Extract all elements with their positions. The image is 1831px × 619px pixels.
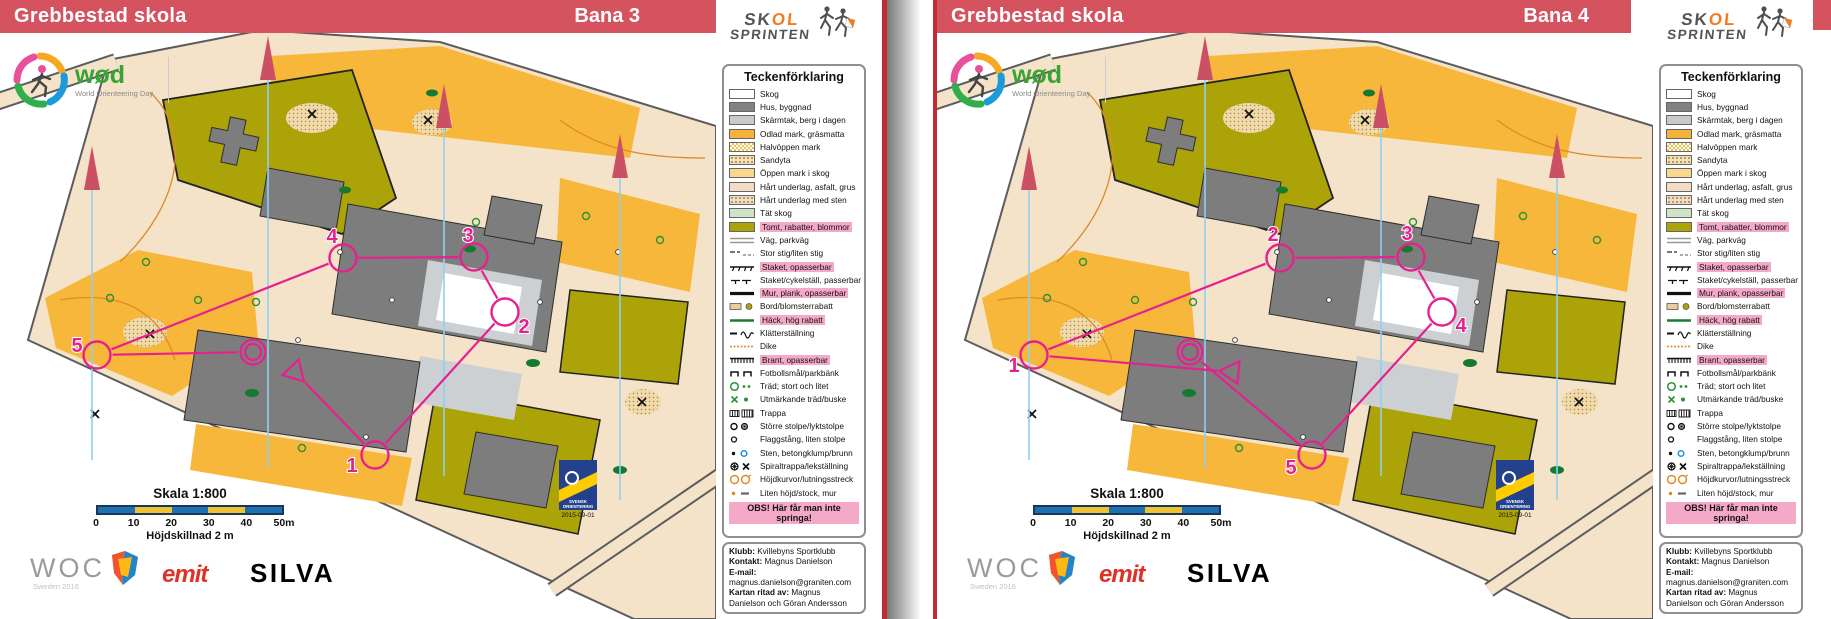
club-info-panel: Klubb: Kvillebyns Sportklubb Kontakt: Ma…	[722, 542, 866, 614]
legend-row: Flaggstång, liten stolpe	[1666, 433, 1796, 446]
legend-label: Klätterställning	[760, 328, 814, 338]
legend-row: Hårt underlag, asfalt, grus	[1666, 180, 1796, 193]
legend-title: Teckenförklaring	[1666, 70, 1796, 84]
fotbollsmal-symbol-icon	[1666, 368, 1692, 378]
scale-tick: 20	[165, 517, 177, 529]
legend-label: Staket/cykelställ, passerbar	[760, 275, 861, 285]
tomt-swatch-icon	[1666, 222, 1692, 232]
utmarkande-trad-symbol-icon	[1666, 394, 1692, 404]
legend-label: Större stolpe/lyktstolpe	[760, 421, 844, 431]
cartographer: Kartan ritad av: Magnus Danielson och Gö…	[729, 588, 859, 609]
sponsor-logos: WOC Sweden 2016 emit SILVA	[0, 545, 400, 619]
control-number: 4	[326, 226, 338, 248]
legend-row: Utmärkande träd/buske	[1666, 393, 1796, 406]
hojdkurvor-symbol-icon	[729, 474, 755, 484]
legend-label: Utmärkande träd/buske	[760, 394, 846, 404]
course-leg-line	[305, 383, 364, 444]
legend-label: Mur, plank, opasserbar	[1697, 288, 1785, 298]
flaggstang-symbol-icon	[729, 434, 755, 444]
legend-label: Öppen mark i skog	[1697, 168, 1767, 178]
contact-name: Kontakt: Magnus Danielson	[729, 557, 859, 567]
control-number: 2	[1267, 224, 1278, 246]
legend-label: Staket/cykelställ, passerbar	[1697, 275, 1798, 285]
woc-logo: WOC Sweden 2016	[967, 555, 1079, 591]
legend-row: Tomt, rabatter, blommor	[729, 220, 859, 233]
legend-label: Skärmtak, berg i dagen	[1697, 115, 1783, 125]
control-circle	[330, 245, 357, 272]
legend-row: Utmärkande träd/buske	[729, 393, 859, 406]
scale-tick: 10	[1065, 517, 1077, 529]
trappa-symbol-icon	[729, 408, 755, 418]
legend-label: Skog	[760, 89, 779, 99]
skolsprinten-wordmark: SKOL SPRINTEN	[1667, 11, 1751, 43]
silva-logo: SILVA	[250, 558, 335, 589]
wod-logo: wød World Orienteering Day	[12, 52, 169, 108]
course-overlay: 12345	[71, 225, 529, 477]
map-page: Grebbestad skola Bana 4 12345 SKOL SPRIN…	[937, 0, 1831, 619]
halvoppen-swatch-icon	[1666, 142, 1692, 152]
legend-row: Flaggstång, liten stolpe	[729, 433, 859, 446]
skog-swatch-icon	[1666, 89, 1692, 99]
skarmtak-swatch-icon	[1666, 115, 1692, 125]
wod-subtitle: World Orienteering Day	[1012, 89, 1090, 98]
legend-row: Öppen mark i skog	[729, 167, 859, 180]
silva-logo: SILVA	[1187, 558, 1272, 589]
legend-row: Staket/cykelställ, passerbar	[729, 273, 859, 286]
legend-row: Hårt underlag med sten	[1666, 193, 1796, 206]
odlad-swatch-icon	[729, 129, 755, 139]
scale-ticks: 01020304050m	[1033, 517, 1221, 530]
legend-label: Hårt underlag, asfalt, grus	[1697, 182, 1792, 192]
federation-name: SVENSK ORIENTERING	[559, 499, 597, 509]
control-number: 3	[1401, 223, 1412, 245]
scale-box: Skala 1:800 01020304050m Höjdskillnad 2 …	[96, 486, 284, 542]
legend-row: Tät skog	[729, 207, 859, 220]
oppenmark-swatch-icon	[729, 168, 755, 178]
sponsor-logos: WOC Sweden 2016 emit SILVA	[937, 545, 1337, 619]
hojdkurvor-symbol-icon	[1666, 474, 1692, 484]
stig-line-icon	[1666, 248, 1692, 258]
woc-wordmark: WOC	[30, 555, 105, 582]
legend-row: Brant, opasserbar	[729, 353, 859, 366]
legend-label: Brant, opasserbar	[1697, 355, 1767, 365]
legend-label: Fotbollsmål/parkbänk	[1697, 368, 1776, 378]
club-name: Klubb: Kvillebyns Sportklubb	[1666, 547, 1796, 557]
legend-label: Odlad mark, gräsmatta	[760, 129, 844, 139]
tatskog-swatch-icon	[729, 208, 755, 218]
dike-line-icon	[1666, 341, 1692, 351]
legend-row: Staket/cykelställ, passerbar	[1666, 273, 1796, 286]
control-number: 4	[1455, 315, 1467, 337]
scale-tick: 30	[1140, 517, 1152, 529]
control-circle	[362, 442, 389, 469]
legend-row: Hårt underlag, asfalt, grus	[729, 180, 859, 193]
oppenmark-swatch-icon	[1666, 168, 1692, 178]
wod-logo: wød World Orienteering Day	[949, 52, 1106, 108]
fotbollsmal-symbol-icon	[729, 368, 755, 378]
svensk-orientering-logo-icon: SVENSK ORIENTERING	[559, 460, 597, 510]
control-circle	[1267, 245, 1294, 272]
legend-row: Liten höjd/stock, mur	[1666, 486, 1796, 499]
legend-row: Odlad mark, gräsmatta	[729, 127, 859, 140]
hack-line-icon	[1666, 315, 1692, 325]
legend-panel: Teckenförklaring SkogHus, byggnadSkärmta…	[722, 64, 866, 538]
skolsprinten-wordmark: SKOL SPRINTEN	[730, 11, 814, 43]
trappa-symbol-icon	[1666, 408, 1692, 418]
scale-box: Skala 1:800 01020304050m Höjdskillnad 2 …	[1033, 486, 1221, 542]
control-number: 3	[462, 225, 473, 247]
legend-label: Dike	[1697, 341, 1714, 351]
skolsprinten-runners-icon	[1752, 3, 1792, 45]
woc-shield-icon	[108, 549, 142, 587]
utmarkande-trad-symbol-icon	[729, 394, 755, 404]
woc-logo: WOC Sweden 2016	[30, 555, 142, 591]
legend-row: Sten, betongklump/brunn	[1666, 446, 1796, 459]
legend-row: Spiraltrappa/lekställning	[1666, 459, 1796, 472]
map-date: 2015-09-01	[1493, 512, 1537, 519]
legend-label: Öppen mark i skog	[760, 168, 830, 178]
hartsten-swatch-icon	[729, 195, 755, 205]
course-leg-line	[1049, 356, 1217, 370]
woc-subtitle: Sweden 2016	[33, 582, 105, 591]
klatterstallning-symbol-icon	[729, 328, 755, 338]
legend-label: Sandyta	[1697, 155, 1727, 165]
sandyta-swatch-icon	[729, 155, 755, 165]
hartunderlag-swatch-icon	[729, 182, 755, 192]
skolsprinten-runners-icon	[815, 3, 855, 45]
legend-row: Skärmtak, berg i dagen	[729, 114, 859, 127]
cartographer: Kartan ritad av: Magnus Danielson och Gö…	[1666, 588, 1796, 609]
spiraltrappa-symbol-icon	[1666, 461, 1692, 471]
legend-label: Dike	[760, 341, 777, 351]
legend-label: Spiraltrappa/lekställning	[1697, 461, 1785, 471]
legend-row: Klätterställning	[1666, 326, 1796, 339]
scale-tick: 30	[203, 517, 215, 529]
start-triangle	[282, 360, 304, 382]
control-circle	[492, 299, 519, 326]
legend-row: Mur, plank, opasserbar	[729, 286, 859, 299]
legend-row: Odlad mark, gräsmatta	[1666, 127, 1796, 140]
sten-brunn-symbol-icon	[729, 448, 755, 458]
legend-label: Häck, hög rabatt	[1697, 315, 1762, 325]
legend-row: Skog	[729, 87, 859, 100]
legend-row: Klätterställning	[729, 326, 859, 339]
odlad-swatch-icon	[1666, 129, 1692, 139]
skolsprinten-logo: SKOL SPRINTEN	[718, 3, 868, 45]
scale-tick: 40	[1178, 517, 1190, 529]
legend-row: Trappa	[1666, 406, 1796, 419]
scale-tick: 0	[1030, 517, 1036, 529]
legend-label: Utmärkande träd/buske	[1697, 394, 1783, 404]
legend-row: Spiraltrappa/lekställning	[729, 459, 859, 472]
email-label: E-mail:	[1666, 568, 1796, 578]
legend-label: Bord/blomsterrabatt	[1697, 301, 1770, 311]
legend-label: Trappa	[1697, 408, 1723, 418]
hartsten-swatch-icon	[1666, 195, 1692, 205]
course-leg-line	[1419, 271, 1435, 299]
scale-ticks: 01020304050m	[96, 517, 284, 530]
legend-label: Hus, byggnad	[760, 102, 811, 112]
legend-row: Väg, parkväg	[729, 233, 859, 246]
legend-row: Brant, opasserbar	[1666, 353, 1796, 366]
legend-label: Hårt underlag, asfalt, grus	[760, 182, 855, 192]
wod-divider	[1105, 57, 1106, 103]
legend-row: Halvöppen mark	[1666, 140, 1796, 153]
legend-row: Hus, byggnad	[1666, 100, 1796, 113]
legend-label: Brant, opasserbar	[760, 355, 830, 365]
legend-label: Höjdkurvor/lutningsstreck	[1697, 474, 1790, 484]
trad-symbol-icon	[1666, 381, 1692, 391]
legend-label: Stor stig/liten stig	[760, 248, 823, 258]
emit-logo: emit	[162, 561, 207, 589]
litenhojd-symbol-icon	[1666, 488, 1692, 498]
skol-line2: SPRINTEN	[730, 28, 812, 43]
stig-line-icon	[729, 248, 755, 258]
legend-row: Sandyta	[729, 153, 859, 166]
finish-circle-outer	[1178, 340, 1203, 365]
wod-wordmark: wød	[1012, 63, 1090, 88]
legend-label: Flaggstång, liten stolpe	[760, 434, 845, 444]
legend-row: Större stolpe/lyktstolpe	[729, 419, 859, 432]
scale-bar	[1033, 505, 1221, 515]
legend-rows: SkogHus, byggnadSkärmtak, berg i dagenOd…	[1666, 87, 1796, 499]
control-circle	[1429, 299, 1456, 326]
legend-label: Bord/blomsterrabatt	[760, 301, 833, 311]
federation-name: SVENSK ORIENTERING	[1496, 499, 1534, 509]
scale-tick: 50m	[273, 517, 294, 529]
trad-symbol-icon	[729, 381, 755, 391]
woc-wordmark: WOC	[967, 555, 1042, 582]
legend-label: Klätterställning	[1697, 328, 1751, 338]
legend-row: Bord/blomsterrabatt	[729, 300, 859, 313]
email-label: E-mail:	[729, 568, 859, 578]
flaggstang-symbol-icon	[1666, 434, 1692, 444]
scale-tick: 40	[241, 517, 253, 529]
legend-label: Staket, opasserbar	[760, 262, 834, 272]
legend-label: Väg, parkväg	[1697, 235, 1746, 245]
halvoppen-swatch-icon	[729, 142, 755, 152]
stolpe-symbol-icon	[729, 421, 755, 431]
school-name: Grebbestad skola	[14, 5, 187, 28]
legend-row: Fotbollsmål/parkbänk	[1666, 366, 1796, 379]
course-leg-line	[111, 264, 328, 350]
control-circle	[461, 244, 488, 271]
legend-row: Bord/blomsterrabatt	[1666, 300, 1796, 313]
control-circle	[1021, 342, 1048, 369]
skolsprinten-logo: SKOL SPRINTEN	[1655, 3, 1805, 45]
emit-logo: emit	[1099, 561, 1144, 589]
scale-tick: 20	[1102, 517, 1114, 529]
bord-symbol-icon	[1666, 301, 1692, 311]
legend-label: Träd; stort och litet	[760, 381, 828, 391]
scale-title: Skala 1:800	[96, 486, 284, 501]
legend-row: Tät skog	[1666, 207, 1796, 220]
legend-label: Sandyta	[760, 155, 790, 165]
club-info-panel: Klubb: Kvillebyns Sportklubb Kontakt: Ma…	[1659, 542, 1803, 614]
legend-label: Fotbollsmål/parkbänk	[760, 368, 839, 378]
course-name: Bana 4	[1523, 5, 1589, 28]
finish-circle-inner	[1182, 344, 1198, 360]
legend-row: Träd; stort och litet	[729, 380, 859, 393]
spiraltrappa-symbol-icon	[729, 461, 755, 471]
scale-title: Skala 1:800	[1033, 486, 1221, 501]
mur-line-icon	[1666, 288, 1692, 298]
course-leg-line	[1201, 362, 1300, 445]
mur-line-icon	[729, 288, 755, 298]
legend-label: Stor stig/liten stig	[1697, 248, 1760, 258]
scale-subtitle: Höjdskillnad 2 m	[96, 530, 284, 542]
sandyta-swatch-icon	[1666, 155, 1692, 165]
legend-label: Större stolpe/lyktstolpe	[1697, 421, 1781, 431]
woc-subtitle: Sweden 2016	[970, 582, 1042, 591]
legend-row: Höjdkurvor/lutningsstreck	[729, 473, 859, 486]
legend-row: Stor stig/liten stig	[1666, 247, 1796, 260]
legend-row: Sten, betongklump/brunn	[729, 446, 859, 459]
staket-passerbar-line-icon	[1666, 275, 1692, 285]
brant-line-icon	[729, 355, 755, 365]
tomt-swatch-icon	[729, 222, 755, 232]
legend-label: Tät skog	[1697, 208, 1729, 218]
legend-label: Mur, plank, opasserbar	[760, 288, 848, 298]
legend-label: Trappa	[760, 408, 786, 418]
course-leg-line	[1295, 257, 1395, 258]
legend-row: Sandyta	[1666, 153, 1796, 166]
start-triangle	[1219, 361, 1239, 384]
legend-label: Tomt, rabatter, blommor	[760, 222, 852, 232]
legend-row: Öppen mark i skog	[1666, 167, 1796, 180]
course-leg-line	[385, 323, 494, 443]
page-edge-line	[933, 0, 937, 619]
legend-row: Liten höjd/stock, mur	[729, 486, 859, 499]
svensk-orientering-logo-icon: SVENSK ORIENTERING	[1496, 460, 1534, 510]
legend-label: Spiraltrappa/lekställning	[760, 461, 848, 471]
legend-row: Mur, plank, opasserbar	[1666, 286, 1796, 299]
legend-row: Större stolpe/lyktstolpe	[1666, 419, 1796, 432]
scale-bar	[96, 505, 284, 515]
email-address: magnus.danielson@graniten.com	[1666, 578, 1796, 588]
hartunderlag-swatch-icon	[1666, 182, 1692, 192]
klatterstallning-symbol-icon	[1666, 328, 1692, 338]
scale-tick: 0	[93, 517, 99, 529]
legend-label: Staket, opasserbar	[1697, 262, 1771, 272]
legend-label: Skärmtak, berg i dagen	[760, 115, 846, 125]
legend-label: Hus, byggnad	[1697, 102, 1748, 112]
skol-line2: SPRINTEN	[1667, 28, 1749, 43]
skarmtak-swatch-icon	[729, 115, 755, 125]
staket-opasserbar-line-icon	[1666, 262, 1692, 272]
control-number: 5	[1285, 457, 1296, 479]
finish-circle-outer	[241, 340, 266, 365]
legend-title: Teckenförklaring	[729, 70, 859, 84]
hus-swatch-icon	[729, 102, 755, 112]
legend-label: Liten höjd/stock, mur	[760, 488, 837, 498]
control-number: 2	[518, 316, 529, 338]
legend-row: Staket, opasserbar	[729, 260, 859, 273]
legend-label: Höjdkurvor/lutningsstreck	[760, 474, 853, 484]
legend-label: Halvöppen mark	[760, 142, 820, 152]
page-divider	[882, 0, 937, 619]
scale-tick: 10	[128, 517, 140, 529]
wod-emblem-icon	[949, 52, 1005, 108]
legend-row: Tomt, rabatter, blommor	[1666, 220, 1796, 233]
page-banner: Grebbestad skola Bana 4	[937, 0, 1631, 33]
no-running-warning: OBS! Här får man inte springa!	[729, 502, 859, 524]
federation-badge: SVENSK ORIENTERING 2015-09-01	[556, 460, 600, 519]
legend-label: Sten, betongklump/brunn	[760, 448, 853, 458]
legend-row: Halvöppen mark	[729, 140, 859, 153]
club-name: Klubb: Kvillebyns Sportklubb	[729, 547, 859, 557]
sten-brunn-symbol-icon	[1666, 448, 1692, 458]
vag-line-icon	[1666, 235, 1692, 245]
control-number: 1	[1008, 355, 1019, 377]
legend-rows: SkogHus, byggnadSkärmtak, berg i dagenOd…	[729, 87, 859, 499]
legend-label: Väg, parkväg	[760, 235, 809, 245]
skog-swatch-icon	[729, 89, 755, 99]
legend-row: Staket, opasserbar	[1666, 260, 1796, 273]
wod-divider	[168, 57, 169, 103]
vag-line-icon	[729, 235, 755, 245]
control-circle	[1398, 244, 1425, 271]
legend-row: Stor stig/liten stig	[729, 247, 859, 260]
next-page-sliver	[1813, 0, 1831, 30]
control-circle	[1299, 442, 1326, 469]
control-circle	[84, 342, 111, 369]
legend-label: Skog	[1697, 89, 1716, 99]
scale-subtitle: Höjdskillnad 2 m	[1033, 530, 1221, 542]
map-date: 2015-09-01	[556, 512, 600, 519]
tatskog-swatch-icon	[1666, 208, 1692, 218]
dike-line-icon	[729, 341, 755, 351]
course-leg-line	[482, 271, 498, 299]
brant-line-icon	[1666, 355, 1692, 365]
legend-label: Flaggstång, liten stolpe	[1697, 434, 1782, 444]
wod-subtitle: World Orienteering Day	[75, 89, 153, 98]
control-number: 1	[346, 455, 357, 477]
legend-label: Tomt, rabatter, blommor	[1697, 222, 1789, 232]
legend-panel: Teckenförklaring SkogHus, byggnadSkärmta…	[1659, 64, 1803, 538]
course-name: Bana 3	[574, 5, 640, 28]
legend-label: Häck, hög rabatt	[760, 315, 825, 325]
legend-label: Sten, betongklump/brunn	[1697, 448, 1790, 458]
legend-row: Häck, hög rabatt	[729, 313, 859, 326]
wod-wordmark: wød	[75, 63, 153, 88]
page-shadow	[887, 0, 927, 619]
legend-row: Hårt underlag med sten	[729, 193, 859, 206]
page-banner: Grebbestad skola Bana 3	[0, 0, 716, 33]
legend-row: Trappa	[729, 406, 859, 419]
staket-opasserbar-line-icon	[729, 262, 755, 272]
school-name: Grebbestad skola	[951, 5, 1124, 28]
no-running-warning: OBS! Här får man inte springa!	[1666, 502, 1796, 524]
contact-name: Kontakt: Magnus Danielson	[1666, 557, 1796, 567]
legend-label: Liten höjd/stock, mur	[1697, 488, 1774, 498]
course-overlay: 12345	[1008, 223, 1467, 479]
bord-symbol-icon	[729, 301, 755, 311]
legend-label: Träd; stort och litet	[1697, 381, 1765, 391]
hus-swatch-icon	[1666, 102, 1692, 112]
legend-row: Träd; stort och litet	[1666, 380, 1796, 393]
legend-row: Väg, parkväg	[1666, 233, 1796, 246]
legend-row: Fotbollsmål/parkbänk	[729, 366, 859, 379]
course-leg-line	[112, 352, 238, 354]
email-address: magnus.danielson@graniten.com	[729, 578, 859, 588]
legend-row: Hus, byggnad	[729, 100, 859, 113]
staket-passerbar-line-icon	[729, 275, 755, 285]
legend-row: Höjdkurvor/lutningsstreck	[1666, 473, 1796, 486]
legend-row: Skog	[1666, 87, 1796, 100]
course-leg-line	[1048, 264, 1265, 350]
hack-line-icon	[729, 315, 755, 325]
